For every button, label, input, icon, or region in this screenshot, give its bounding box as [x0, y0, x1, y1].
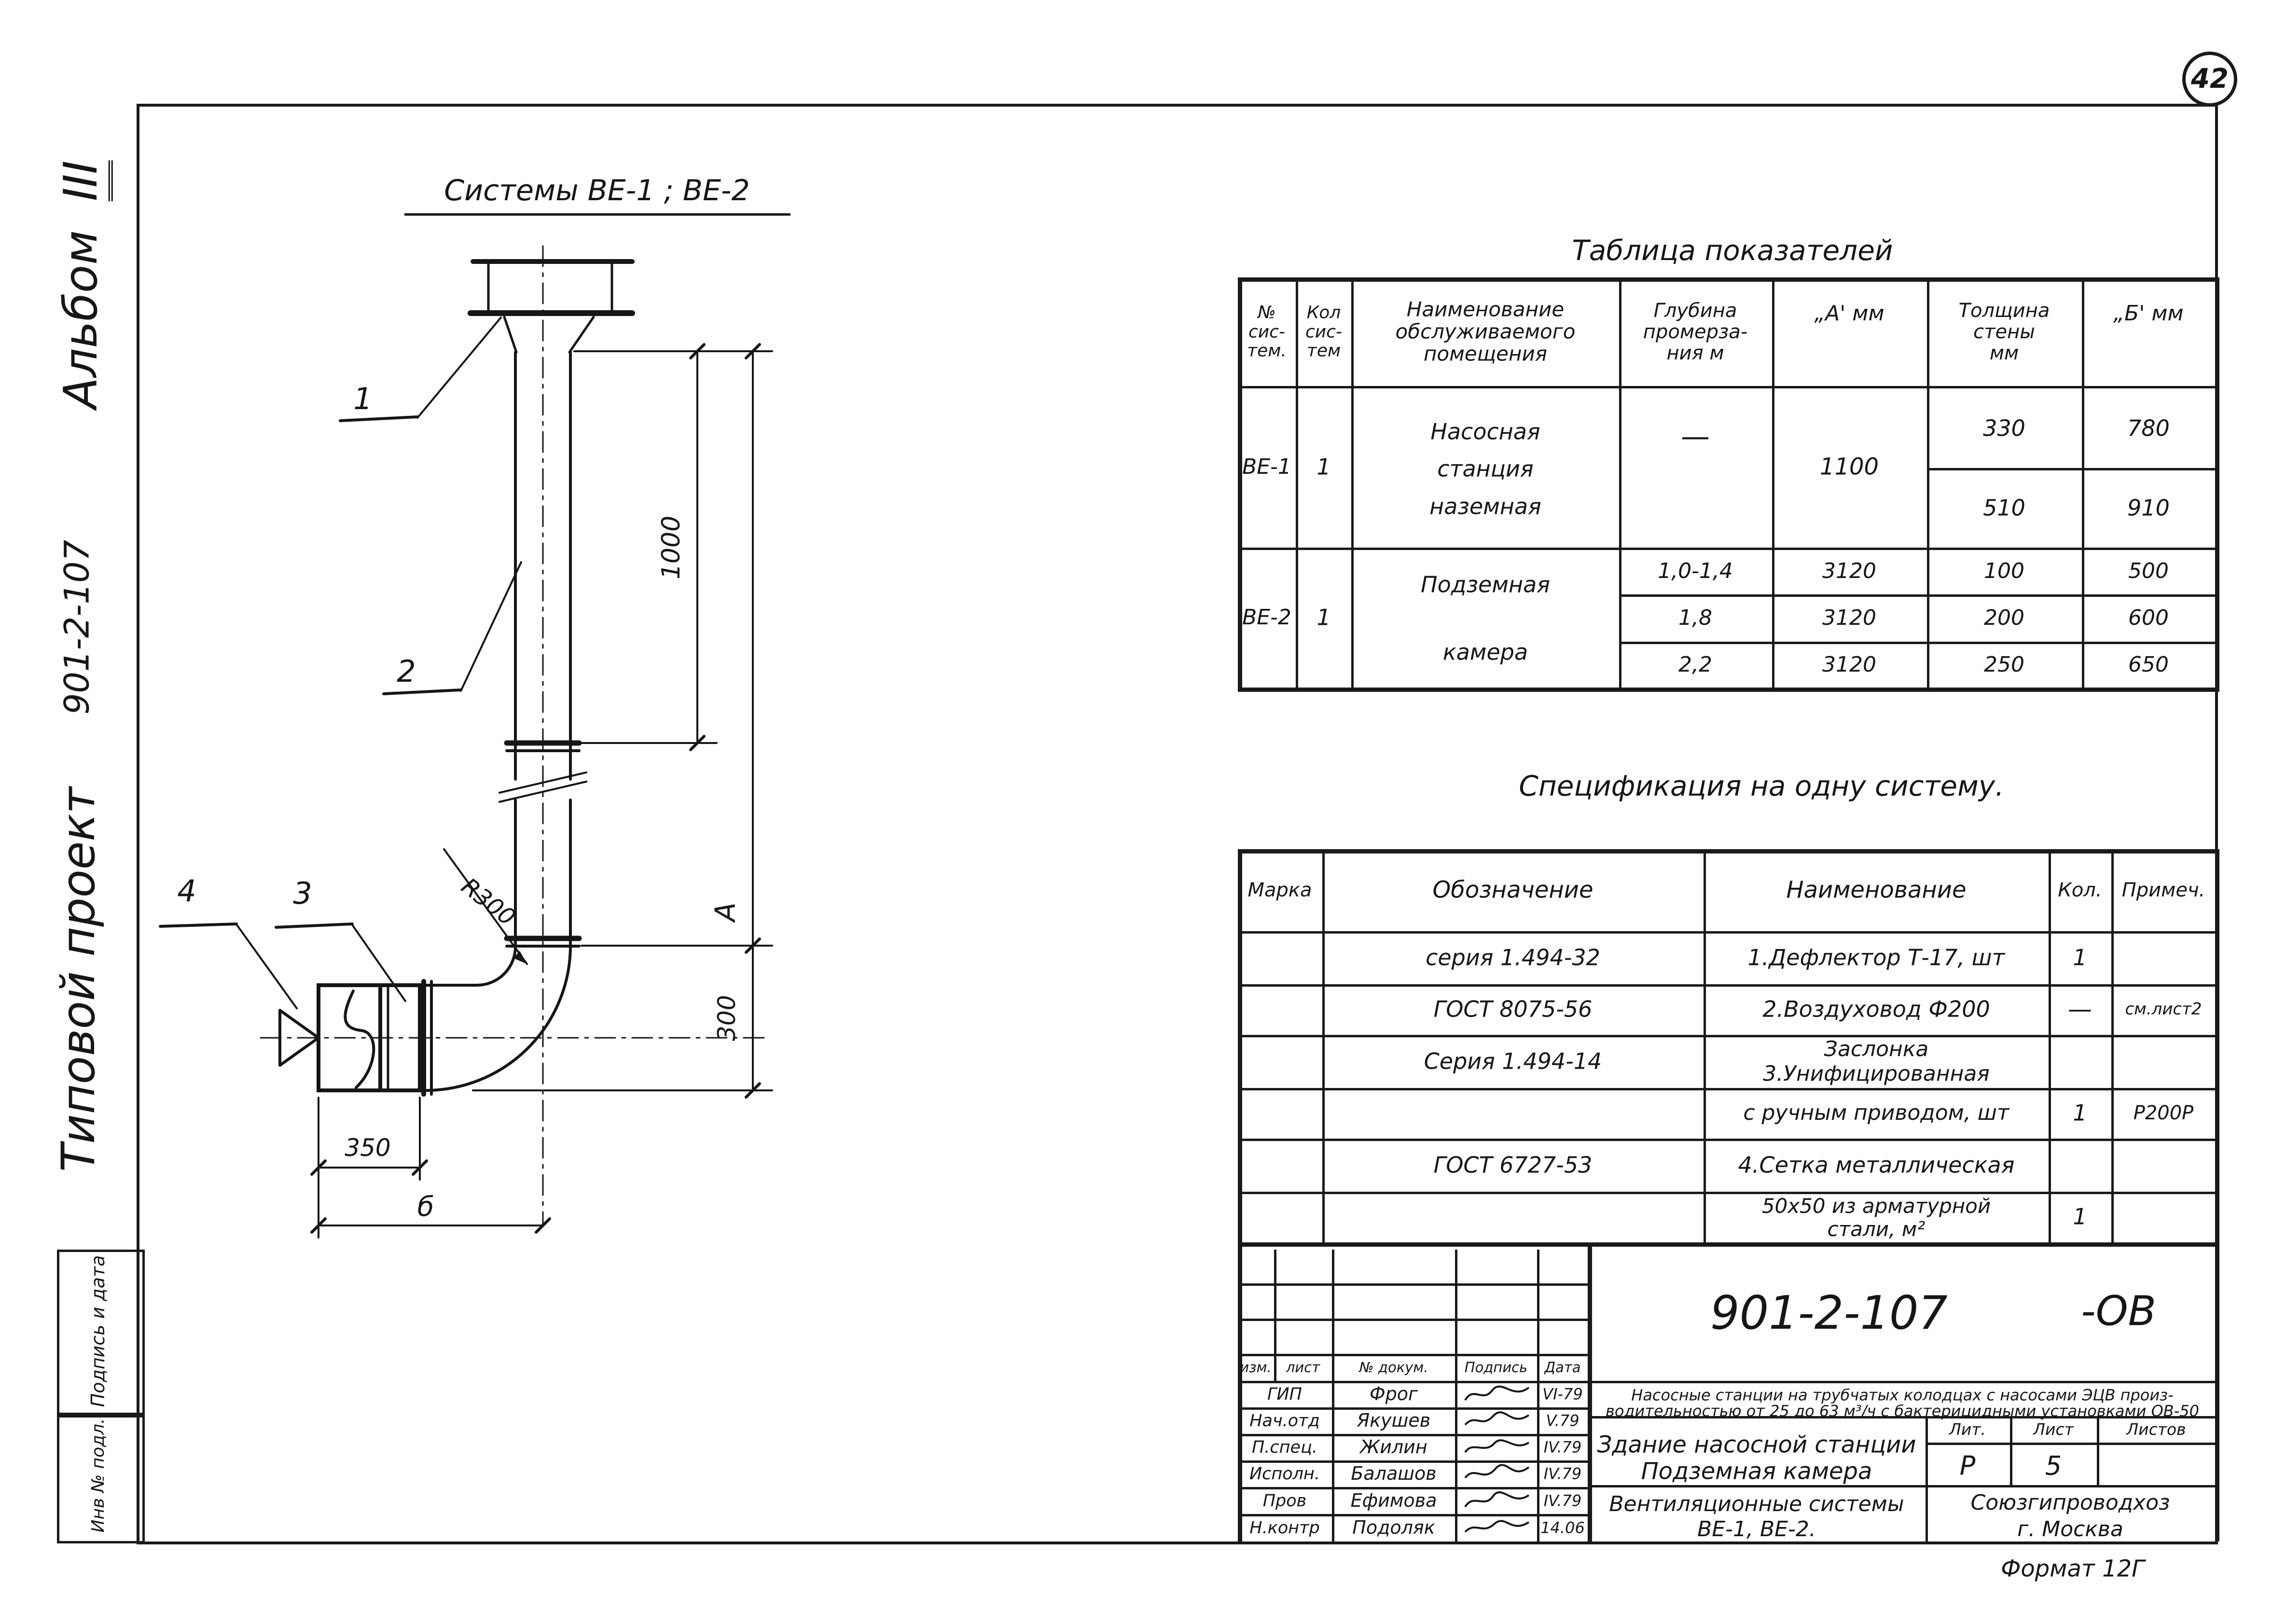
spec-r1-name: 1.Дефлектор Т-17, шт: [1747, 946, 2005, 970]
sig-date: IV.79: [1544, 1439, 1582, 1456]
spec-header-qty: Кол.: [2058, 880, 2102, 901]
hdr-line: Глубина: [1643, 300, 1747, 321]
table1-r1-room: Насосная: [1430, 420, 1540, 444]
organization-line1: Союзгипроводхоз: [1970, 1491, 2170, 1514]
spec-grid-line: [1238, 931, 2219, 934]
table1-grid-line: [1238, 548, 2219, 550]
table1-grid-line: [2215, 277, 2219, 688]
table1-r2-room: камера: [1443, 640, 1528, 665]
hdr-line: сис-: [1305, 322, 1342, 342]
spec-r5-name: 4.Сетка металлическая: [1738, 1153, 2015, 1178]
sig-name: Фрог: [1370, 1384, 1418, 1404]
dim-a-label: А: [709, 902, 742, 923]
doc-code: 901-2-107: [1710, 1288, 1948, 1339]
sheet-number: 42: [2191, 64, 2229, 94]
table1-header-room: Наименование обслуживаемого помещения: [1396, 299, 1576, 366]
spec-header-code: Обозначение: [1432, 878, 1593, 903]
table1-grid-line: [1238, 688, 2219, 692]
table1-r2-s3-depth: 2,2: [1678, 653, 1712, 676]
spec-grid-line: [1704, 849, 1706, 1242]
table1-header-num: № сис- тем.: [1247, 303, 1287, 361]
format-note: Формат 12Г: [2001, 1556, 2145, 1582]
table1-r2-s1-depth: 1,0-1,4: [1658, 560, 1733, 583]
titleblock-line: [1926, 1416, 1928, 1541]
titleblock-line: [1588, 1246, 1592, 1541]
dim-350-label: 350: [345, 1134, 390, 1162]
signature-mark: [1462, 1517, 1532, 1539]
titleblock-line: [1238, 1514, 1588, 1516]
titleblock-line: [2097, 1416, 2099, 1485]
table1-r2-s2-b: 600: [2128, 606, 2169, 630]
deflector: [471, 261, 632, 352]
table1-r1-num: ВЕ-1: [1242, 455, 1291, 479]
hdr-line: Кол: [1305, 303, 1342, 323]
hdr-line: №: [1247, 303, 1287, 323]
project-description-line2: водительностью от 25 до 63 м³/ч с бактер…: [1606, 1403, 2199, 1419]
table1-r1-wall1: 330: [1983, 416, 2025, 441]
table1-header-qty: Кол сис- тем: [1305, 303, 1342, 361]
titleblock-line: [1537, 1250, 1539, 1541]
hdr-line: промерза-: [1643, 321, 1747, 343]
table1-r2-s3-a: 3120: [1822, 653, 1876, 676]
table1-grid-line: [2082, 277, 2084, 688]
spec-header-name: Наименование: [1786, 878, 1966, 903]
hdr-line: тем.: [1247, 342, 1287, 361]
spec-grid-line: [1238, 984, 2219, 987]
spec-grid-line: [1238, 1035, 2219, 1037]
spec-r2-code: ГОСТ 8075-56: [1434, 997, 1593, 1022]
spec-grid-line: [1238, 849, 1242, 1242]
spec-r2-name: 2.Воздуховод Ф200: [1762, 997, 1990, 1022]
col-sign: Подпись: [1465, 1360, 1527, 1376]
hdr-line: сис-: [1247, 322, 1287, 342]
spec-r2-qty: —: [2068, 996, 2092, 1023]
spec-grid-line: [1238, 849, 2219, 853]
spec-grid-line: [1238, 1242, 2219, 1247]
titleblock-line: [1926, 1443, 2219, 1445]
table1-r2-qty: 1: [1316, 606, 1330, 630]
spec-grid-line: [2111, 849, 2114, 1242]
sig-role: ГИП: [1267, 1385, 1302, 1404]
table1-r2-s2-depth: 1,8: [1678, 606, 1712, 630]
table1-header-b: „Б' мм: [2113, 302, 2183, 325]
table1-grid-line: [1238, 386, 2219, 388]
sig-role: Н.контр: [1249, 1519, 1320, 1538]
titleblock-line: [1238, 1487, 1588, 1489]
table1-grid-line: [1927, 277, 1929, 688]
sig-date: IV.79: [1544, 1492, 1582, 1509]
margin-project-name: Типовой проект: [54, 787, 104, 1172]
signature-date-box-label: Подпись и дата: [88, 1255, 109, 1407]
titleblock-line: [1238, 1283, 1588, 1286]
callout-4-label: 4: [177, 873, 196, 908]
hdr-line: Толщина: [1959, 300, 2050, 321]
spec-header-mark: Марка: [1247, 880, 1312, 901]
spec-grid-line: [2049, 849, 2051, 1242]
sig-name: Жилин: [1360, 1437, 1427, 1458]
elbow: [420, 946, 570, 1094]
sig-name: Якушев: [1357, 1411, 1430, 1431]
titleblock-line: [2010, 1416, 2012, 1485]
duct-drawing: 1 2 3 4 1000 А 300 350 б R300: [135, 207, 787, 1269]
album-word: Альбом: [55, 230, 108, 409]
table1-r1-b2: 910: [2127, 496, 2170, 521]
callout-2-label: 2: [397, 654, 416, 689]
hdr-line: помещения: [1396, 343, 1576, 365]
table1-r2-num: ВЕ-2: [1242, 606, 1291, 629]
signature-mark: [1462, 1384, 1532, 1405]
lit-value: Р: [1960, 1451, 1976, 1480]
sig-role: П.спец.: [1252, 1438, 1317, 1457]
table1-grid-line: [1296, 277, 1298, 688]
sig-name: Балашов: [1351, 1464, 1436, 1484]
sheet-subtitle-line1: Вентиляционные системы: [1609, 1493, 1904, 1516]
titleblock-line: [1238, 1354, 1588, 1356]
spec-grid-line: [1238, 1088, 2219, 1090]
spec-title: Спецификация на одну систему.: [1519, 771, 2004, 802]
hdr-line: стены: [1959, 321, 2050, 343]
table1-r2-room: Подземная: [1421, 573, 1550, 597]
sig-role: Исполн.: [1249, 1465, 1320, 1484]
hdr-line: ния м: [1643, 343, 1747, 364]
spec-r6-name2: стали, м²: [1828, 1218, 1926, 1240]
sig-role: Нач.отд: [1249, 1412, 1320, 1431]
table1-header-wall: Толщина стены мм: [1959, 300, 2050, 364]
table1-r2-s3-wall: 250: [1984, 653, 2024, 676]
table1-r1-a: 1100: [1820, 454, 1879, 480]
project-description-line1: Насосные станции на трубчатых колодцах с…: [1631, 1387, 2173, 1404]
drawing-sheet: 42 Альбом III 901-2-107 Типовой проект П…: [0, 0, 2286, 1624]
spec-grid-line: [2215, 849, 2219, 1242]
table1-r1-room: станция: [1437, 457, 1533, 482]
spec-header-note: Примеч.: [2122, 880, 2205, 901]
table1-title: Таблица показателей: [1572, 235, 1893, 266]
hdr-line: мм: [1959, 343, 2050, 364]
hdr-line: обслуживаемого: [1396, 321, 1576, 343]
album-number: III: [55, 161, 113, 201]
table1-r1-b1: 780: [2127, 416, 2170, 441]
dim-radius-label: R300: [456, 873, 520, 931]
callout-1-label: 1: [353, 381, 372, 416]
spec-r3-name1: Заслонка: [1824, 1038, 1929, 1061]
spec-grid-line: [1238, 1139, 2219, 1141]
titleblock-line: [1238, 1242, 1242, 1541]
spec-grid-line: [1238, 1192, 2219, 1194]
sig-date: 14.06: [1540, 1519, 1585, 1536]
table1-r2-s2-wall: 200: [1984, 606, 2024, 630]
spec-grid-line: [1322, 849, 1325, 1242]
table1-grid-line: [1772, 277, 1774, 688]
sig-role: Пров: [1263, 1492, 1307, 1511]
sheet-subtitle-line2: ВЕ-1, ВЕ-2.: [1697, 1518, 1816, 1541]
spec-r3-name2: 3.Унифицированная: [1763, 1062, 1990, 1086]
spec-r5-code: ГОСТ 6727-53: [1434, 1153, 1593, 1178]
drawing-title: Системы ВЕ-1 ; ВЕ-2: [444, 175, 750, 206]
dimension-ticks: [312, 344, 760, 1232]
organization-line2: г. Москва: [2017, 1518, 2123, 1541]
list-header: Лист: [2033, 1421, 2074, 1438]
titleblock-line: [1588, 1485, 2219, 1487]
table1-grid-line: [1351, 277, 1354, 688]
hdr-line: тем: [1305, 342, 1342, 361]
signature-mark: [1462, 1463, 1532, 1485]
table1-grid-line: [1619, 594, 2219, 597]
table1-grid-line: [1238, 277, 1242, 688]
callout-leaders: [160, 317, 521, 1008]
table1-r1-depth: —: [1681, 421, 1710, 453]
table1-header-a: „А' мм: [1814, 302, 1884, 325]
dim-1000-label: 1000: [657, 516, 686, 579]
spec-r4-name: с ручным приводом, шт: [1743, 1101, 2009, 1125]
drawing-labels: 1 2 3 4 1000 А 300 350 б R300: [177, 381, 742, 1223]
spec-r6-qty: 1: [2073, 1205, 2087, 1229]
sig-date: IV.79: [1544, 1465, 1582, 1482]
spec-r3-code: Серия 1.494-14: [1424, 1049, 1602, 1074]
callout-3-label: 3: [293, 876, 312, 911]
table1-r1-room: наземная: [1429, 495, 1541, 519]
margin-project-code: 901-2-107: [59, 540, 96, 715]
col-doc: № докум.: [1359, 1360, 1428, 1376]
table1-grid-line: [1619, 642, 2219, 644]
table1-r2-s1-a: 3120: [1822, 560, 1876, 583]
object-title-line1: Здание насосной станции: [1597, 1432, 1916, 1458]
col-date: Дата: [1544, 1360, 1580, 1376]
sig-name: Подоляк: [1352, 1518, 1435, 1538]
list-value: 5: [2045, 1451, 2062, 1480]
titleblock-line: [1332, 1250, 1334, 1541]
spec-r6-name1: 50х50 из арматурной: [1762, 1195, 1991, 1217]
table1-grid-line: [1238, 277, 2219, 282]
spec-r1-qty: 1: [2073, 946, 2087, 970]
dim-b-label: б: [417, 1191, 434, 1223]
sheet-number-badge: 42: [2182, 52, 2237, 107]
sig-date: V.79: [1546, 1412, 1579, 1429]
table1-header-depth: Глубина промерза- ния м: [1643, 300, 1747, 364]
titleblock-line: [2215, 1242, 2219, 1541]
table1-r1-qty: 1: [1316, 455, 1330, 480]
col-list: лист: [1286, 1360, 1320, 1376]
col-izm: изм.: [1240, 1360, 1271, 1376]
table1-r2-s1-wall: 100: [1984, 560, 2024, 583]
signature-mark: [1462, 1410, 1532, 1431]
listov-header: Листов: [2126, 1421, 2186, 1438]
titleblock-line: [1455, 1250, 1457, 1541]
album-label: Альбом III: [56, 161, 107, 409]
table1-r2-s2-a: 3120: [1822, 606, 1876, 630]
sig-name: Ефимова: [1351, 1491, 1437, 1511]
object-title-line2: Подземная камера: [1641, 1459, 1872, 1485]
spec-r4-qty: 1: [2073, 1101, 2087, 1126]
table1-r2-s1-b: 500: [2128, 560, 2169, 583]
spec-r2-note: см.лист2: [2125, 1000, 2202, 1018]
spec-r1-code: серия 1.494-32: [1426, 946, 1600, 970]
table1-grid-line: [1619, 277, 1621, 688]
hdr-line: Наименование: [1396, 299, 1576, 321]
sig-date: VI-79: [1542, 1386, 1583, 1403]
table1-r2-s3-b: 650: [2128, 653, 2169, 676]
spec-r4-note: Р200Р: [2134, 1102, 2194, 1124]
table1-grid-line: [1927, 468, 2219, 470]
signature-mark: [1462, 1437, 1532, 1458]
signature-mark: [1462, 1490, 1532, 1512]
inventory-box-label: Инв № подл.: [89, 1418, 108, 1533]
titleblock-line: [1274, 1250, 1276, 1381]
dim-300-label: 300: [713, 995, 741, 1041]
titleblock-line: [1238, 1319, 1588, 1321]
lit-header: Лит.: [1949, 1421, 1986, 1438]
doc-suffix: -ОВ: [2081, 1289, 2156, 1334]
table1-r1-wall2: 510: [1983, 496, 2025, 521]
